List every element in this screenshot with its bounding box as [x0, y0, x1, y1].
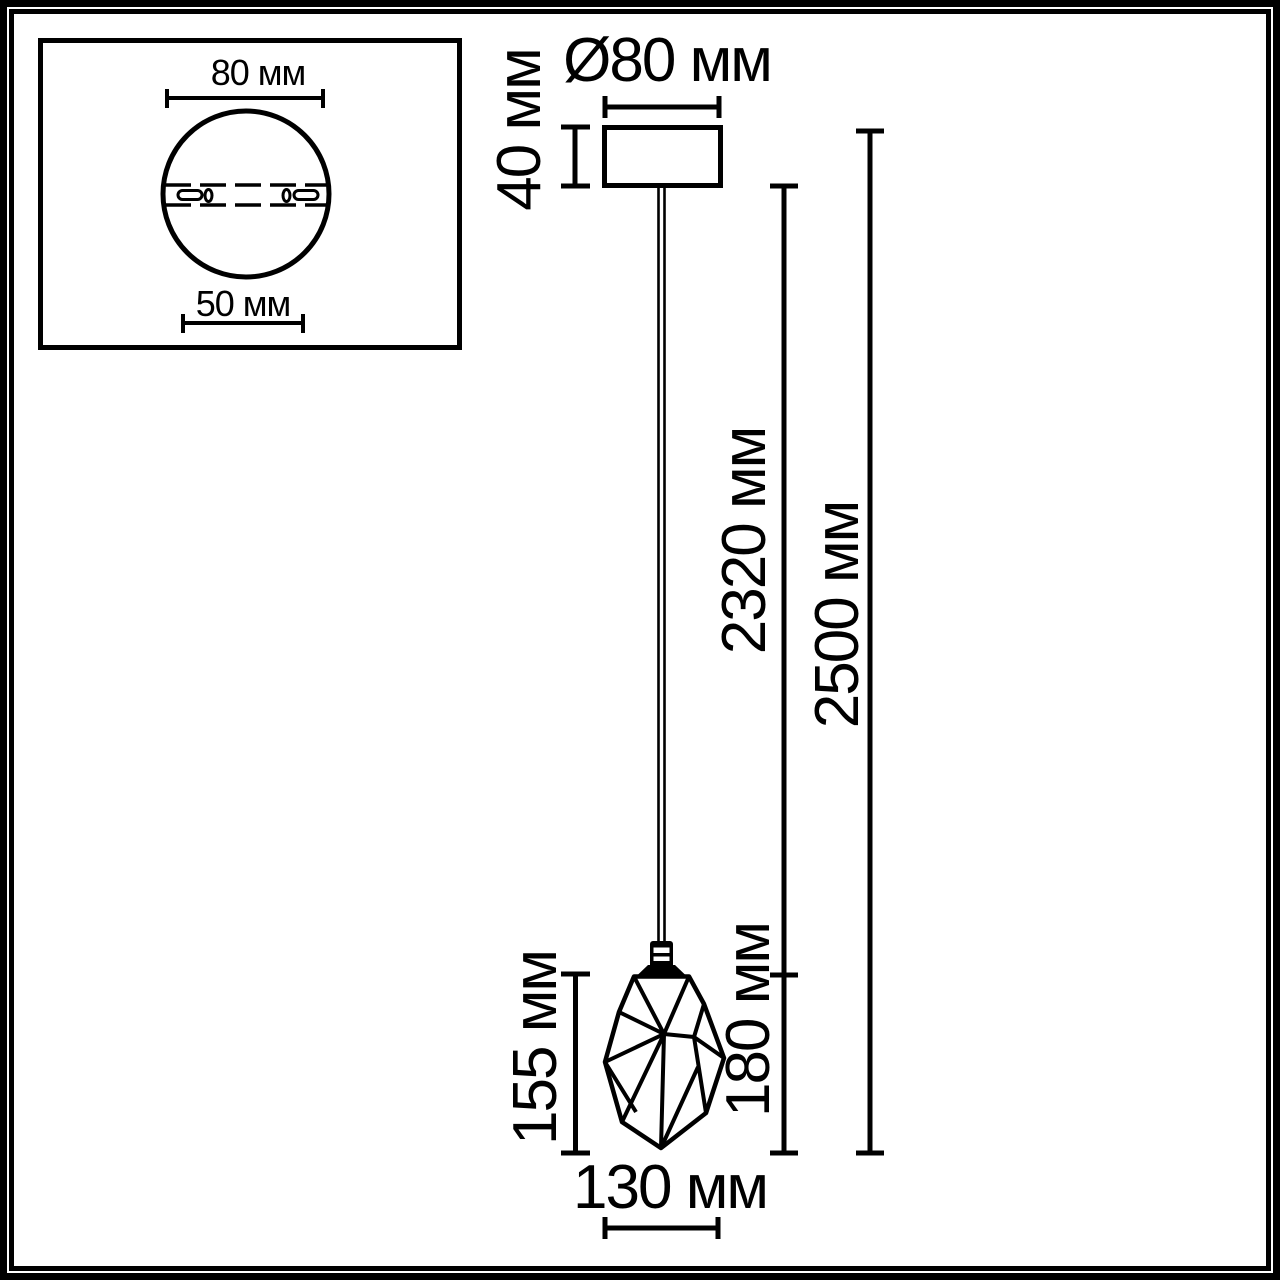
socket-slot-lower — [654, 957, 670, 962]
canopy-height-label: 40 мм — [489, 49, 551, 210]
shade-width-label: 130 мм — [573, 1157, 767, 1219]
dimension-line-canopy-height — [561, 127, 590, 186]
lamp-socket — [636, 941, 687, 977]
faceted-shade — [605, 977, 724, 1149]
dimension-line-canopy-diameter — [605, 96, 719, 118]
socket-slot-upper — [654, 948, 670, 954]
socket-body — [650, 941, 673, 968]
shade-with-socket-label: 180 мм — [718, 923, 780, 1117]
cord-length-label: 2320 мм — [714, 428, 776, 654]
ceiling-canopy — [605, 128, 721, 186]
canopy-diameter-label: Ø80 мм — [563, 30, 771, 92]
pendant-lamp-drawing — [0, 0, 1280, 1280]
suspension-cord — [659, 186, 665, 943]
shade-height-label: 155 мм — [505, 951, 567, 1145]
overall-height-label: 2500 мм — [807, 502, 869, 728]
